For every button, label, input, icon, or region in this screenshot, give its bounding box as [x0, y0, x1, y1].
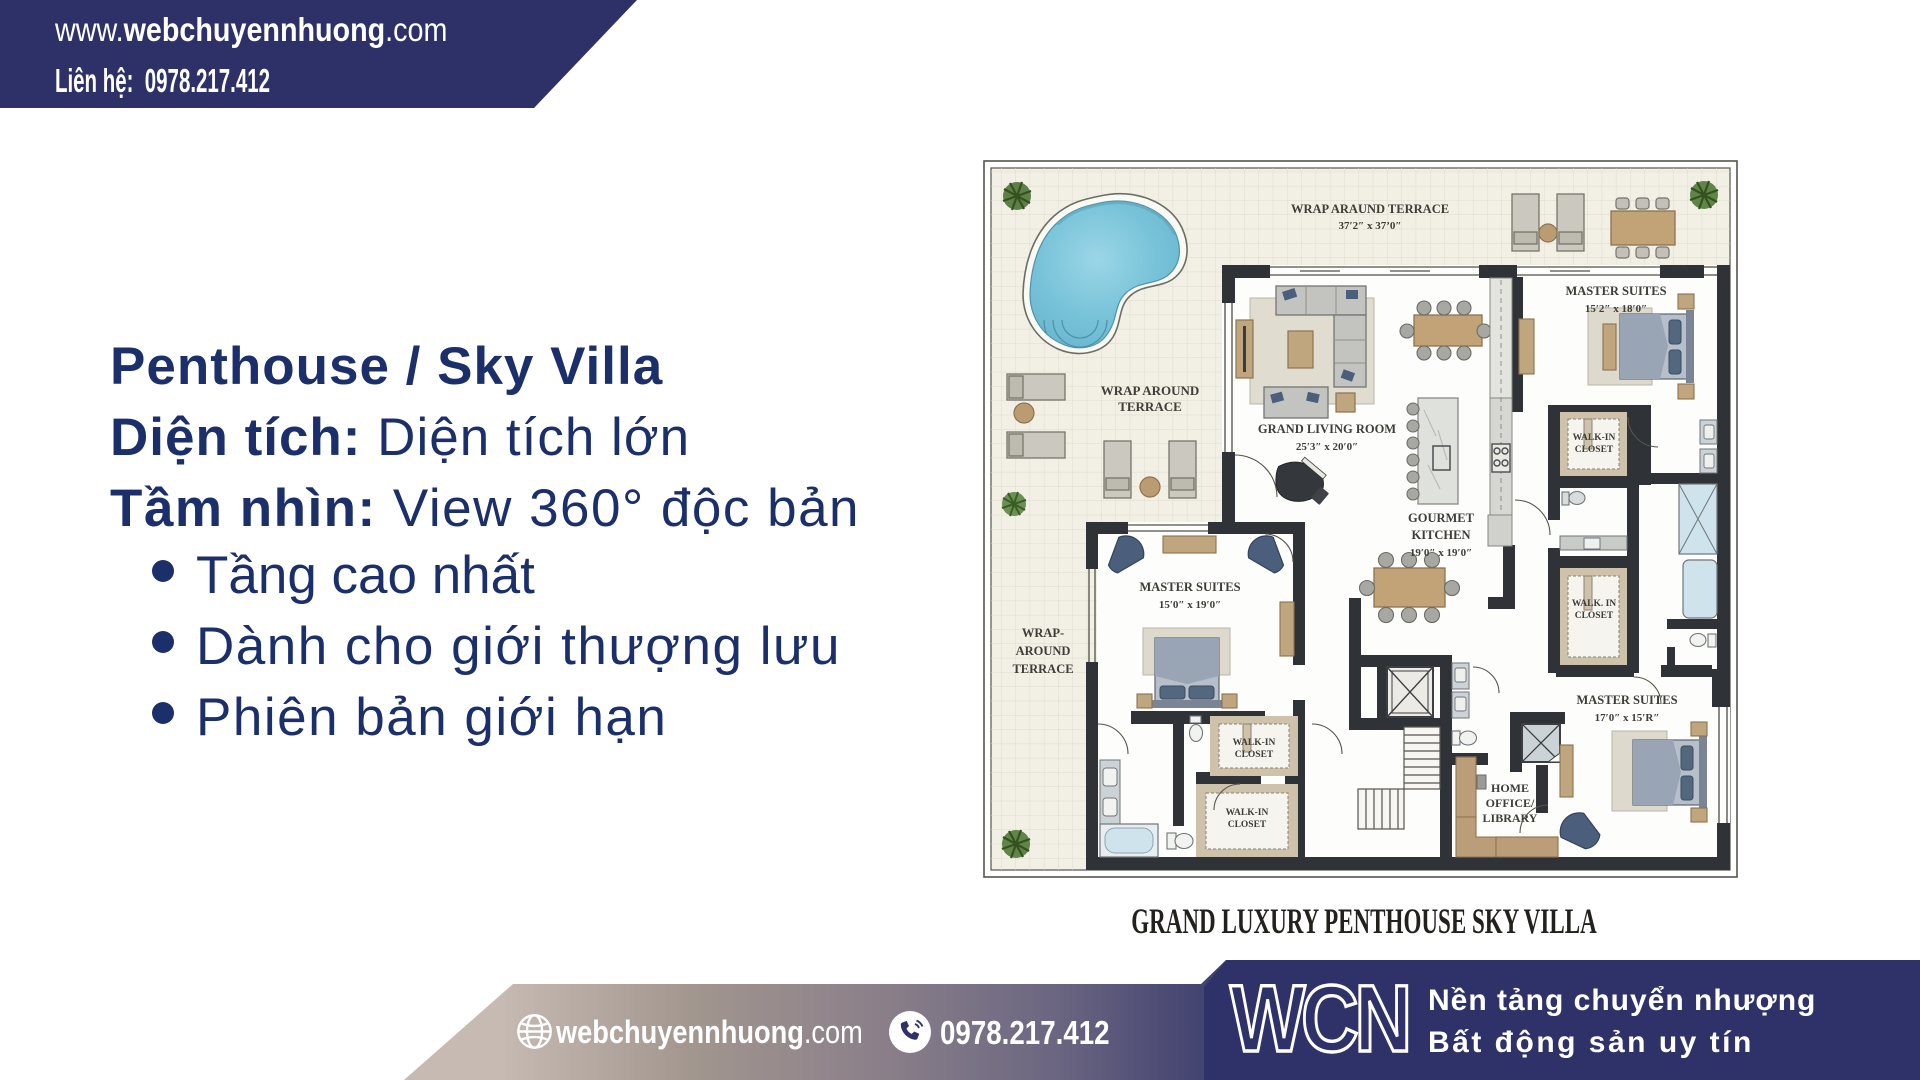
svg-text:GRAND LUXURY PENTHOUSE SKY VIL: GRAND LUXURY PENTHOUSE SKY VILLA: [1131, 901, 1597, 941]
svg-text:AROUND: AROUND: [1016, 644, 1071, 658]
svg-text:HOME: HOME: [1491, 781, 1529, 795]
svg-text:OFFICE/: OFFICE/: [1486, 796, 1535, 810]
svg-text:19′0″ x 19′0″: 19′0″ x 19′0″: [1410, 547, 1472, 559]
svg-text:TERRACE: TERRACE: [1012, 662, 1073, 676]
svg-text:17′0″ x 15′R″: 17′0″ x 15′R″: [1595, 712, 1660, 724]
svg-text:25′3″ x 20′0″: 25′3″ x 20′0″: [1296, 441, 1358, 453]
svg-text:GRAND LIVING ROOM: GRAND LIVING ROOM: [1258, 422, 1396, 436]
svg-text:KITCHEN: KITCHEN: [1411, 528, 1470, 542]
svg-text:WALK-IN: WALK-IN: [1226, 808, 1269, 818]
svg-text:15′2″ x 18′0″: 15′2″ x 18′0″: [1585, 303, 1647, 315]
svg-text:CLOSET: CLOSET: [1575, 611, 1614, 621]
svg-text:WRAP-: WRAP-: [1022, 626, 1064, 640]
svg-text:CLOSET: CLOSET: [1228, 820, 1267, 830]
svg-text:MASTER SUITES: MASTER SUITES: [1576, 693, 1677, 707]
svg-text:WALK. IN: WALK. IN: [1572, 599, 1616, 609]
svg-text:MASTER SUITES: MASTER SUITES: [1565, 284, 1666, 298]
svg-text:WALK-IN: WALK-IN: [1233, 738, 1276, 748]
svg-text:GOURMET: GOURMET: [1408, 511, 1475, 525]
svg-text:MASTER SUITES: MASTER SUITES: [1139, 580, 1240, 594]
svg-text:WALK-IN: WALK-IN: [1573, 433, 1616, 443]
svg-text:CLOSET: CLOSET: [1575, 445, 1614, 455]
svg-text:TERRACE: TERRACE: [1118, 399, 1182, 414]
svg-text:37′2″ x 37’0″: 37′2″ x 37’0″: [1339, 220, 1402, 232]
svg-text:15′0″ x 19′0″: 15′0″ x 19′0″: [1159, 599, 1221, 611]
svg-text:CLOSET: CLOSET: [1235, 750, 1274, 760]
svg-text:LIBRARY: LIBRARY: [1483, 811, 1538, 825]
svg-text:WRAP AROUND: WRAP AROUND: [1101, 383, 1200, 398]
svg-text:WRAP ARAUND TERRACE: WRAP ARAUND TERRACE: [1291, 202, 1449, 216]
